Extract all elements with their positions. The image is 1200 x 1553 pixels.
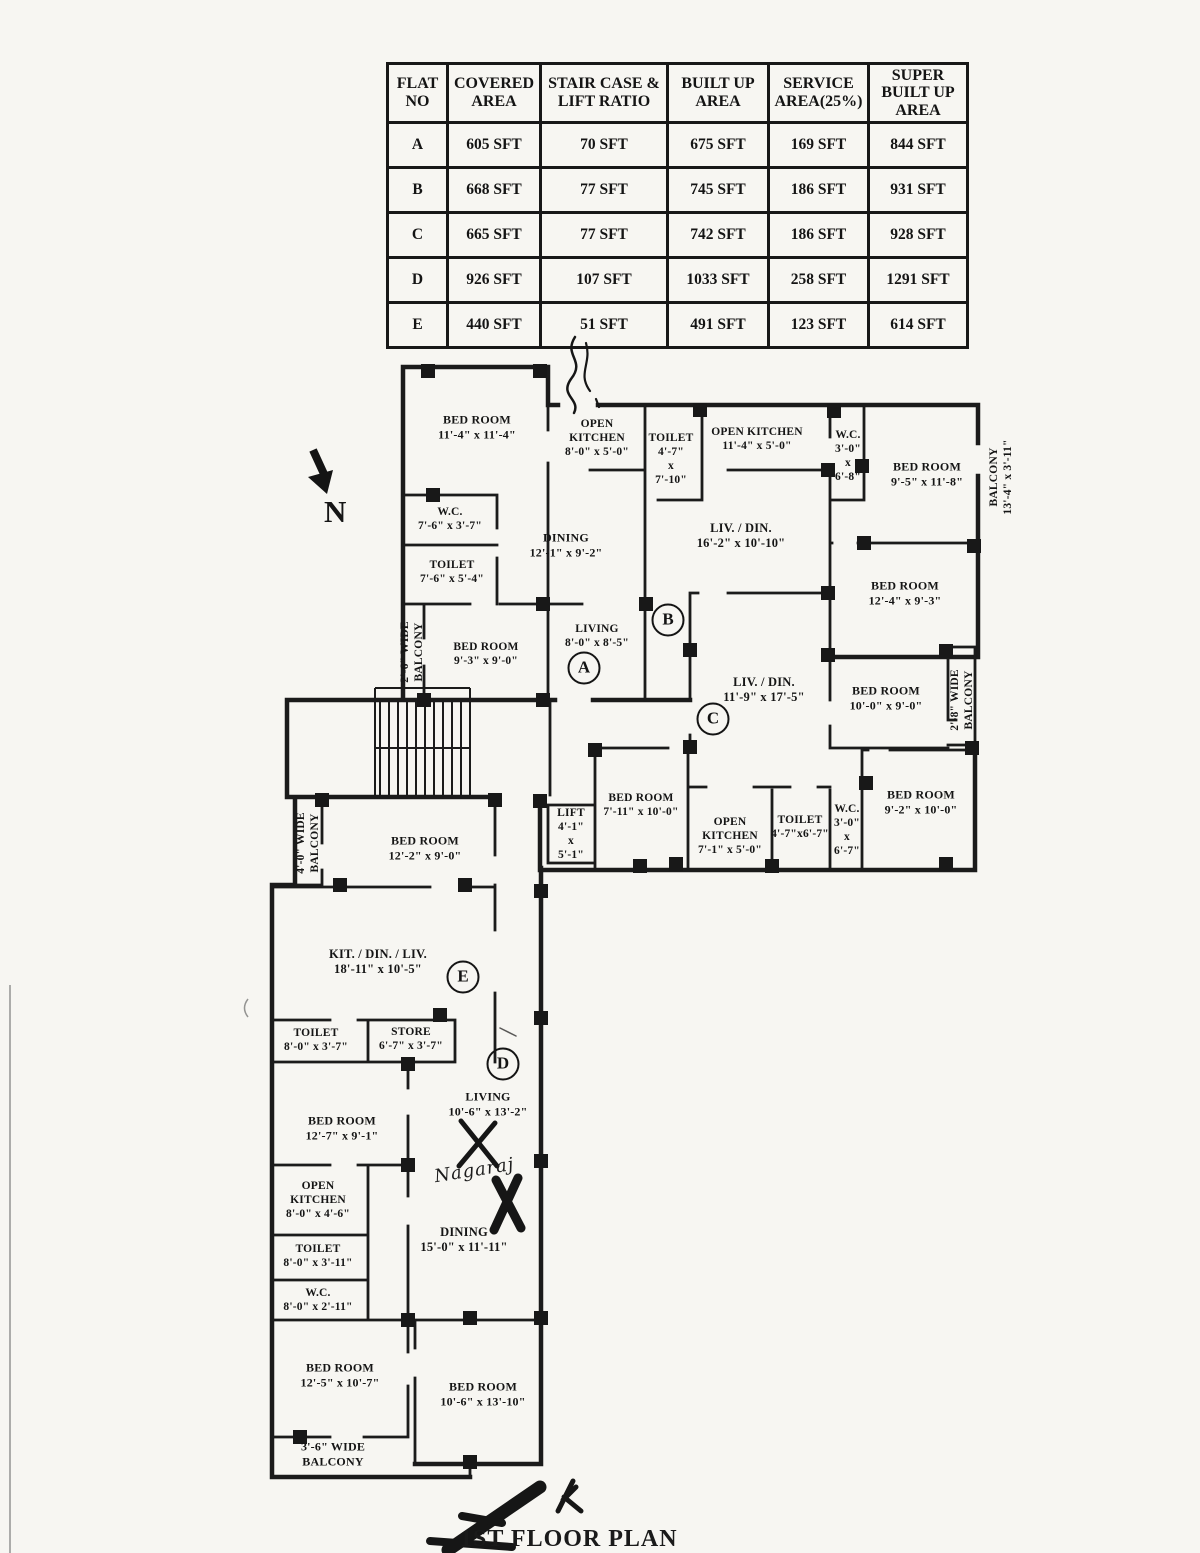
room-label: W.C.7'-6" x 3'-7" bbox=[418, 505, 482, 533]
room-label: TOILET4'-7"x6'-7" bbox=[771, 813, 829, 841]
room-label-line: 10'-6" x 13'-10" bbox=[440, 1394, 525, 1409]
floor-plan-drawing bbox=[0, 0, 1200, 1553]
flat-marker-b: B bbox=[652, 604, 685, 637]
room-label-line: 7'-6" x 3'-7" bbox=[418, 519, 482, 533]
room-label-line: DINING bbox=[420, 1225, 507, 1240]
room-label-line: OPEN KITCHEN bbox=[711, 425, 803, 439]
room-label: LIFT4'-1"x5'-1" bbox=[557, 806, 585, 862]
room-label-line: 11'-4" x 5'-0" bbox=[711, 439, 803, 453]
room-label-line: BALCONY bbox=[962, 669, 976, 731]
north-arrow-icon bbox=[308, 450, 333, 494]
room-label-line: x bbox=[835, 456, 861, 470]
room-label-line: 9'-5" x 11'-8" bbox=[891, 474, 963, 489]
room-label-line: 5'-1" bbox=[557, 848, 585, 862]
room-label-line: 2'-6" WIDE bbox=[398, 621, 412, 683]
room-label-line: 12'-1" x 9'-2" bbox=[530, 545, 603, 560]
plan-title: 1ST FLOOR PLAN bbox=[460, 1526, 678, 1553]
room-label-line: 9'-2" x 10'-0" bbox=[885, 802, 958, 817]
room-label: TOILET7'-6" x 5'-4" bbox=[420, 558, 484, 586]
room-label: BALCONY13'-4" x 3'-11" bbox=[987, 439, 1015, 514]
room-label-line: DINING bbox=[530, 530, 603, 545]
room-label-line: 2'-8" WIDE bbox=[948, 669, 962, 731]
room-label-line: BED ROOM bbox=[306, 1113, 379, 1128]
room-label: OPENKITCHEN8'-0" x 4'-6" bbox=[286, 1179, 350, 1221]
room-label-line: W.C. bbox=[418, 505, 482, 519]
room-label-line: TOILET bbox=[284, 1026, 348, 1040]
room-label-line: BED ROOM bbox=[885, 787, 958, 802]
room-label: TOILET8'-0" x 3'-11" bbox=[283, 1242, 352, 1270]
room-label-line: STORE bbox=[379, 1025, 443, 1039]
room-label: BED ROOM9'-5" x 11'-8" bbox=[891, 459, 963, 488]
inner-walls bbox=[272, 405, 978, 1477]
room-label-line: W.C. bbox=[835, 428, 861, 442]
flat-marker-c: C bbox=[697, 703, 730, 736]
room-label-line: 3'-0" bbox=[835, 442, 861, 456]
room-label-line: LIVING bbox=[449, 1089, 528, 1104]
room-label: BED ROOM12'-7" x 9'-1" bbox=[306, 1113, 379, 1142]
outer-walls bbox=[272, 367, 978, 1477]
room-label: W.C.3'-0"x6'-8" bbox=[835, 428, 861, 484]
room-label-line: 12'-5" x 10'-7" bbox=[301, 1375, 380, 1390]
room-label-line: 6'-7" bbox=[834, 844, 860, 858]
flat-marker-a: A bbox=[568, 652, 601, 685]
room-label-line: OPEN bbox=[698, 815, 762, 829]
room-label-line: 4'-7"x6'-7" bbox=[771, 827, 829, 841]
room-label: LIV. / DIN.11'-9" x 17'-5" bbox=[723, 675, 804, 706]
room-label-line: LIVING bbox=[565, 622, 629, 636]
room-label-line: 6'-7" x 3'-7" bbox=[379, 1039, 443, 1053]
room-label-line: BALCONY bbox=[308, 812, 322, 874]
room-label-line: TOILET bbox=[420, 558, 484, 572]
room-label-line: LIV. / DIN. bbox=[697, 521, 786, 536]
room-label: 2'-6" WIDEBALCONY bbox=[398, 621, 426, 683]
room-label-line: 10'-6" x 13'-2" bbox=[449, 1104, 528, 1119]
room-label: DINING15'-0" x 11'-11" bbox=[420, 1225, 507, 1256]
room-label: BED ROOM9'-2" x 10'-0" bbox=[885, 787, 958, 816]
room-label-line: 7'-6" x 5'-4" bbox=[420, 572, 484, 586]
scanned-floor-plan-page: FLAT NOCOVERED AREASTAIR CASE & LIFT RAT… bbox=[0, 0, 1200, 1553]
room-label-line: 11'-9" x 17'-5" bbox=[723, 690, 804, 705]
room-label-line: 10'-0" x 9'-0" bbox=[850, 698, 923, 713]
room-label-line: 9'-3" x 9'-0" bbox=[453, 654, 518, 668]
room-label: STORE6'-7" x 3'-7" bbox=[379, 1025, 443, 1053]
room-label: OPENKITCHEN7'-1" x 5'-0" bbox=[698, 815, 762, 857]
room-label-line: 8'-0" x 3'-7" bbox=[284, 1040, 348, 1054]
room-label: 2'-8" WIDEBALCONY bbox=[948, 669, 976, 731]
room-label-line: 8'-0" x 8'-5" bbox=[565, 636, 629, 650]
room-label-line: BED ROOM bbox=[440, 1379, 525, 1394]
room-label: BED ROOM7'-11" x 10'-0" bbox=[603, 791, 678, 819]
flat-marker-e: E bbox=[447, 961, 480, 994]
room-label-line: BED ROOM bbox=[438, 412, 516, 427]
room-label-line: BALCONY bbox=[987, 439, 1001, 514]
room-label: BED ROOM10'-6" x 13'-10" bbox=[440, 1379, 525, 1408]
room-label: BED ROOM9'-3" x 9'-0" bbox=[453, 640, 518, 668]
room-label-line: BED ROOM bbox=[453, 640, 518, 654]
room-label-line: LIFT bbox=[557, 806, 585, 820]
room-label-line: x bbox=[557, 834, 585, 848]
room-label: 4'-0" WIDEBALCONY bbox=[294, 812, 322, 874]
room-label-line: BED ROOM bbox=[389, 833, 462, 848]
room-label-line: 8'-0" x 2'-11" bbox=[283, 1300, 352, 1314]
room-label-line: 7'-10" bbox=[648, 473, 693, 487]
room-label-line: 7'-11" x 10'-0" bbox=[603, 805, 678, 819]
room-label: OPENKITCHEN8'-0" x 5'-0" bbox=[565, 417, 629, 459]
room-label-line: x bbox=[834, 830, 860, 844]
room-label-line: 3'-0" bbox=[834, 816, 860, 830]
room-label: BED ROOM12'-4" x 9'-3" bbox=[869, 578, 942, 607]
room-label-line: BED ROOM bbox=[301, 1360, 380, 1375]
room-label-line: 8'-0" x 5'-0" bbox=[565, 445, 629, 459]
room-label-line: KIT. / DIN. / LIV. bbox=[329, 947, 427, 962]
room-label-line: KITCHEN bbox=[565, 431, 629, 445]
room-label: OPEN KITCHEN11'-4" x 5'-0" bbox=[711, 425, 803, 453]
room-label-line: LIV. / DIN. bbox=[723, 675, 804, 690]
room-label-line: 12'-7" x 9'-1" bbox=[306, 1128, 379, 1143]
room-label: BED ROOM10'-0" x 9'-0" bbox=[850, 683, 923, 712]
room-label-line: BED ROOM bbox=[869, 578, 942, 593]
room-label-line: 4'-0" WIDE bbox=[294, 812, 308, 874]
room-label-line: 15'-0" x 11'-11" bbox=[420, 1240, 507, 1255]
room-label: DINING12'-1" x 9'-2" bbox=[530, 530, 603, 559]
room-label-line: BALCONY bbox=[412, 621, 426, 683]
room-label: KIT. / DIN. / LIV.18'-11" x 10'-5" bbox=[329, 947, 427, 978]
flat-marker-d: D bbox=[487, 1048, 520, 1081]
room-label: BED ROOM12'-2" x 9'-0" bbox=[389, 833, 462, 862]
room-label-line: 12'-4" x 9'-3" bbox=[869, 593, 942, 608]
north-label: N bbox=[324, 494, 346, 530]
room-label-line: BED ROOM bbox=[891, 459, 963, 474]
room-label-line: W.C. bbox=[283, 1286, 352, 1300]
room-label-line: TOILET bbox=[283, 1242, 352, 1256]
room-label-line: x bbox=[648, 459, 693, 473]
room-label-line: KITCHEN bbox=[286, 1193, 350, 1207]
room-label-line: 4'-7" bbox=[648, 445, 693, 459]
room-label-line: 8'-0" x 3'-11" bbox=[283, 1256, 352, 1270]
room-label-line: TOILET bbox=[648, 431, 693, 445]
room-label-line: 18'-11" x 10'-5" bbox=[329, 962, 427, 977]
room-label: LIVING10'-6" x 13'-2" bbox=[449, 1089, 528, 1118]
room-label: 3'-6" WIDEBALCONY bbox=[301, 1439, 365, 1468]
room-label: TOILET4'-7"x7'-10" bbox=[648, 431, 693, 487]
room-label: BED ROOM12'-5" x 10'-7" bbox=[301, 1360, 380, 1389]
room-label-line: BALCONY bbox=[301, 1454, 365, 1469]
room-label: TOILET8'-0" x 3'-7" bbox=[284, 1026, 348, 1054]
room-label-line: OPEN bbox=[286, 1179, 350, 1193]
room-label: LIV. / DIN.16'-2" x 10'-10" bbox=[697, 521, 786, 552]
room-label-line: BED ROOM bbox=[603, 791, 678, 805]
room-label: W.C.8'-0" x 2'-11" bbox=[283, 1286, 352, 1314]
room-label-line: 11'-4" x 11'-4" bbox=[438, 427, 516, 442]
room-label-line: 16'-2" x 10'-10" bbox=[697, 536, 786, 551]
room-label: W.C.3'-0"x6'-7" bbox=[834, 802, 860, 858]
room-label-line: 13'-4" x 3'-11" bbox=[1001, 439, 1015, 514]
room-label-line: 6'-8" bbox=[835, 470, 861, 484]
room-label-line: 8'-0" x 4'-6" bbox=[286, 1207, 350, 1221]
room-label-line: 12'-2" x 9'-0" bbox=[389, 848, 462, 863]
room-label-line: OPEN bbox=[565, 417, 629, 431]
column-markers bbox=[293, 364, 981, 1469]
room-label-line: 3'-6" WIDE bbox=[301, 1439, 365, 1454]
room-label-line: BED ROOM bbox=[850, 683, 923, 698]
room-label: LIVING8'-0" x 8'-5" bbox=[565, 622, 629, 650]
scan-artifacts bbox=[10, 985, 248, 1553]
room-label-line: KITCHEN bbox=[698, 829, 762, 843]
room-label-line: 4'-1" bbox=[557, 820, 585, 834]
room-label: BED ROOM11'-4" x 11'-4" bbox=[438, 412, 516, 441]
x-mark-thick bbox=[494, 1178, 521, 1230]
room-label-line: 7'-1" x 5'-0" bbox=[698, 843, 762, 857]
room-label-line: TOILET bbox=[771, 813, 829, 827]
room-label-line: W.C. bbox=[834, 802, 860, 816]
